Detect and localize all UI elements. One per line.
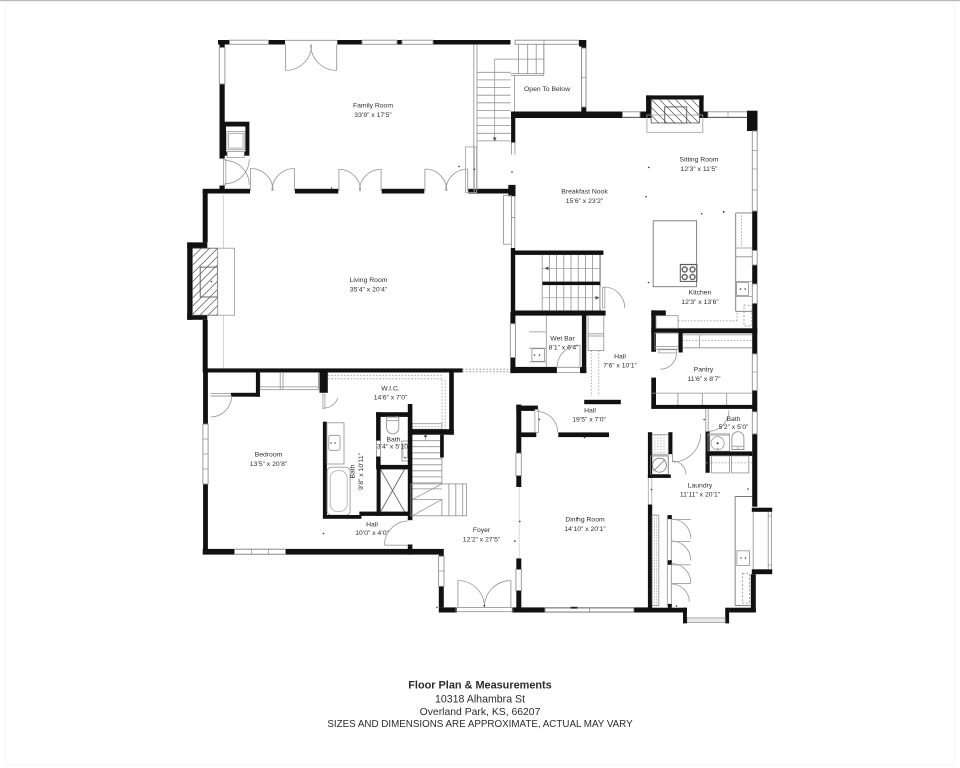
svg-text:Open To Below: Open To Below <box>524 86 570 93</box>
svg-text:Bedroom: Bedroom <box>255 452 283 459</box>
svg-text:9’8” x 10’11”: 9’8” x 10’11” <box>358 452 365 490</box>
svg-text:5’2” x 5’0”: 5’2” x 5’0” <box>719 424 750 431</box>
svg-text:Overland Park, KS, 66207: Overland Park, KS, 66207 <box>420 707 541 718</box>
svg-text:Dining Room: Dining Room <box>565 517 605 524</box>
svg-text:13’5” x 20’8”: 13’5” x 20’8” <box>250 461 288 468</box>
svg-text:33’9” x 17’5”: 33’9” x 17’5” <box>354 112 392 119</box>
svg-text:Bath: Bath <box>727 416 741 423</box>
svg-text:19’5” x 7’0”: 19’5” x 7’0” <box>572 417 606 424</box>
svg-text:Pantry: Pantry <box>694 367 714 374</box>
svg-text:3’4” x 5’10”: 3’4” x 5’10” <box>377 444 411 451</box>
svg-text:8’1” x 6’4”: 8’1” x 6’4” <box>549 345 580 352</box>
svg-text:Breakfast Nook: Breakfast Nook <box>561 189 608 196</box>
svg-text:Sitting Room: Sitting Room <box>680 157 719 164</box>
svg-text:Laundry: Laundry <box>688 483 713 490</box>
svg-text:12’3” x 11’5”: 12’3” x 11’5” <box>681 166 719 173</box>
svg-text:Living Room: Living Room <box>350 277 388 284</box>
svg-text:14’10” x 20’1”: 14’10” x 20’1” <box>564 526 606 533</box>
svg-text:Hall: Hall <box>614 354 626 361</box>
svg-text:Hall: Hall <box>366 522 378 529</box>
svg-text:12’2” x 27’5”: 12’2” x 27’5” <box>463 537 501 544</box>
svg-text:Floor Plan & Measurements: Floor Plan & Measurements <box>408 679 551 691</box>
svg-text:10318 Alhambra St: 10318 Alhambra St <box>435 694 525 706</box>
svg-text:11’11” x 20’1”: 11’11” x 20’1” <box>680 492 721 499</box>
svg-text:11’6” x 8’7”: 11’6” x 8’7” <box>687 376 721 383</box>
svg-text:12’3” x 13’6”: 12’3” x 13’6” <box>681 299 719 306</box>
svg-text:Bath: Bath <box>350 464 357 478</box>
svg-text:SIZES AND DIMENSIONS ARE APPRO: SIZES AND DIMENSIONS ARE APPROXIMATE, AC… <box>327 719 633 730</box>
svg-text:15’6” x 23’2”: 15’6” x 23’2” <box>566 198 604 205</box>
svg-text:Kitchen: Kitchen <box>689 290 712 297</box>
svg-text:10’0” x 4’0”: 10’0” x 4’0” <box>355 530 389 537</box>
svg-text:Foyer: Foyer <box>473 527 491 534</box>
svg-text:Bath: Bath <box>387 436 401 443</box>
svg-text:Wet Bar: Wet Bar <box>550 336 575 343</box>
svg-text:W.I.C.: W.I.C. <box>381 386 400 393</box>
svg-text:7’6” x 10’1”: 7’6” x 10’1” <box>603 363 637 370</box>
svg-text:Hall: Hall <box>584 408 596 415</box>
svg-text:14’6” x 7’0”: 14’6” x 7’0” <box>374 395 408 402</box>
svg-text:Family Room: Family Room <box>353 103 393 110</box>
svg-text:35’4” x 20’4”: 35’4” x 20’4” <box>350 287 388 294</box>
